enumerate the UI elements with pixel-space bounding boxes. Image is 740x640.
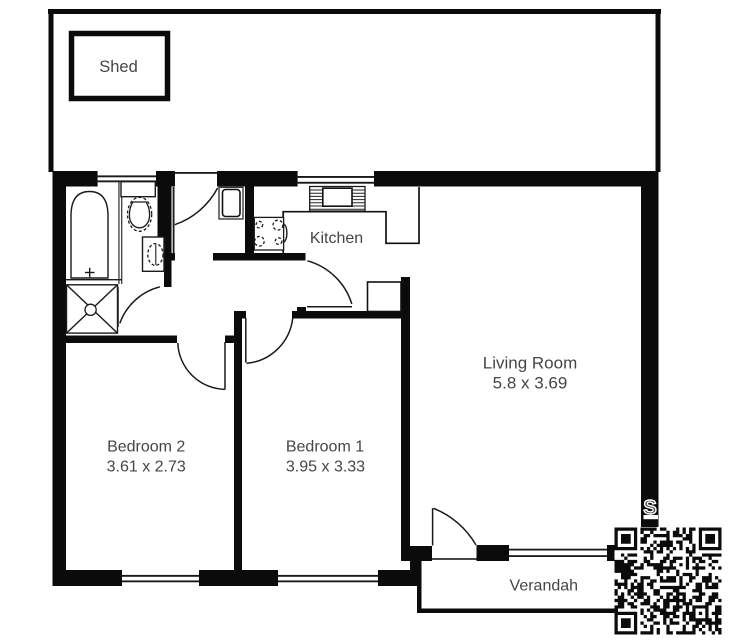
svg-text:Bedroom 1: Bedroom 1 bbox=[286, 438, 364, 455]
svg-text:Bedroom 2: Bedroom 2 bbox=[107, 438, 185, 455]
svg-text:Shed: Shed bbox=[99, 58, 138, 76]
svg-text:3.61 x 2.73: 3.61 x 2.73 bbox=[107, 459, 186, 476]
svg-text:Verandah: Verandah bbox=[510, 577, 579, 594]
svg-text:3.95 x 3.33: 3.95 x 3.33 bbox=[286, 459, 365, 476]
svg-text:5.8 x 3.69: 5.8 x 3.69 bbox=[493, 374, 568, 393]
svg-text:Kitchen: Kitchen bbox=[310, 230, 363, 247]
svg-text:Living Room: Living Room bbox=[483, 354, 578, 373]
